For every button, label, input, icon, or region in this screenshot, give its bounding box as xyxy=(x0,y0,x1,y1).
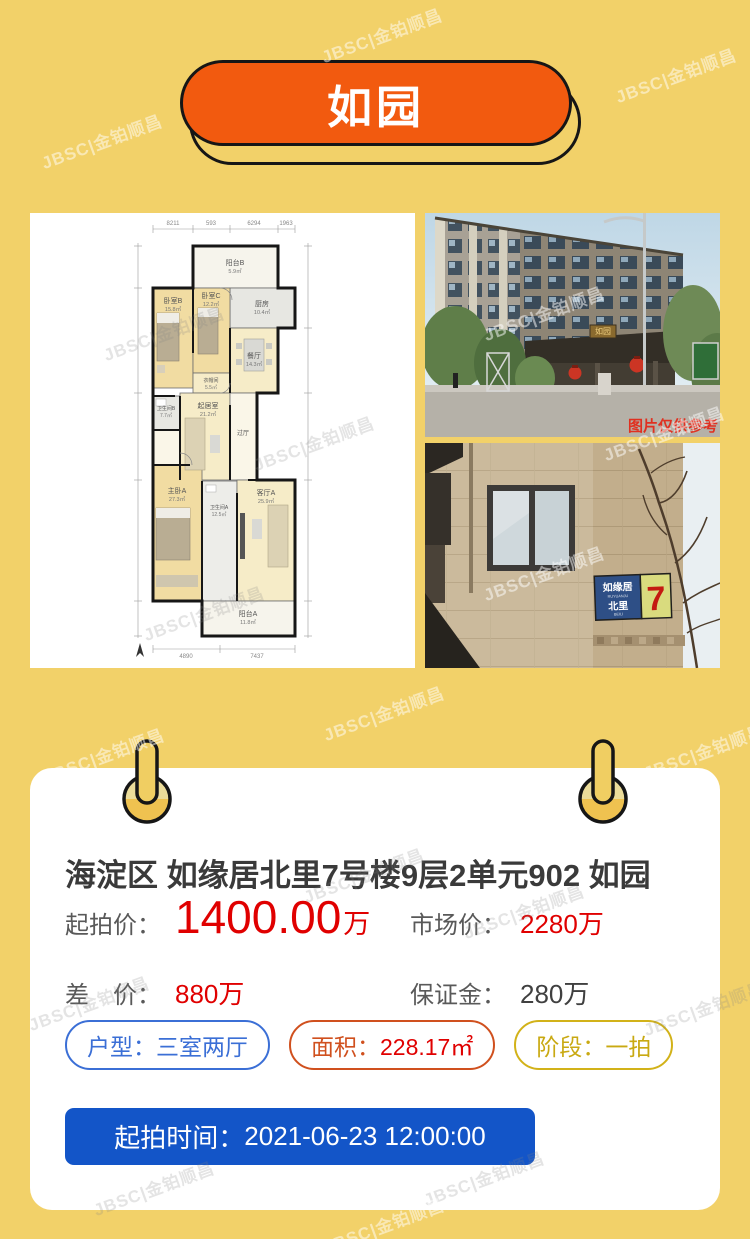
auction-time-button[interactable]: 起拍时间： 2021-06-23 12:00:00 xyxy=(65,1108,535,1165)
svg-text:7437: 7437 xyxy=(250,654,264,660)
svg-text:阳台B: 阳台B xyxy=(226,258,245,267)
svg-text:卧室C: 卧室C xyxy=(201,291,220,300)
market-price-label: 市场价： xyxy=(410,905,506,940)
svg-text:593: 593 xyxy=(206,221,217,227)
mosaic-band xyxy=(593,635,685,646)
svg-text:1963: 1963 xyxy=(279,221,293,227)
pin-icon xyxy=(121,737,173,827)
svg-text:厨房: 厨房 xyxy=(255,299,269,308)
street-number-photo: 如缘居 RUYUANJU 北里 BEILI 7 xyxy=(425,443,720,668)
svg-text:起居室: 起居室 xyxy=(198,401,219,410)
street-number-sign: 如缘居 RUYUANJU 北里 BEILI 7 xyxy=(594,574,671,621)
sign-stand xyxy=(598,373,611,395)
starting-price: 起拍价： 1400.00 万 xyxy=(65,894,410,941)
sign-number: 7 xyxy=(646,580,666,619)
svg-text:4890: 4890 xyxy=(179,654,193,660)
street-lamp-pole xyxy=(643,213,646,398)
area-tag-label: 面积： xyxy=(311,1028,380,1062)
area-tag-value: 228.17㎡ xyxy=(380,1028,473,1062)
svg-text:餐厅: 餐厅 xyxy=(247,351,261,360)
svg-text:7.7㎡: 7.7㎡ xyxy=(160,412,172,419)
sign-line1-pinyin: RUYUANJU xyxy=(608,594,629,599)
floorplan-drawing: 8211 593 6294 1963 4890 7437 xyxy=(30,213,415,668)
svg-text:5.9㎡: 5.9㎡ xyxy=(228,267,242,275)
photo-disclaimer: 图片仅供参考 xyxy=(628,417,718,435)
stage-tag: 阶段： 一拍 xyxy=(514,1020,673,1070)
svg-text:12.2㎡: 12.2㎡ xyxy=(203,300,220,308)
stage-tag-value: 一拍 xyxy=(605,1028,651,1062)
sky-strip xyxy=(683,443,720,668)
svg-text:6294: 6294 xyxy=(247,221,261,227)
svg-text:衣帽间: 衣帽间 xyxy=(203,377,218,384)
building-photo: 如园 图片仅供参考 xyxy=(425,213,720,437)
svg-text:10.4㎡: 10.4㎡ xyxy=(254,308,271,316)
watermark: JBSC|金铂顺昌 xyxy=(320,679,448,746)
starting-price-label: 起拍价： xyxy=(65,905,161,940)
layout-tag-label: 户型： xyxy=(87,1028,156,1062)
room-balcony-b xyxy=(193,246,278,288)
price-difference: 差 价： 880万 xyxy=(65,974,410,1011)
plaque-text: 如园 xyxy=(595,326,611,336)
watermark: JBSC|金铂顺昌 xyxy=(318,1,446,68)
notice-board xyxy=(693,343,718,379)
deposit-value: 280万 xyxy=(520,974,589,1011)
price-difference-label: 差 价： xyxy=(65,975,161,1010)
svg-text:主卧A: 主卧A xyxy=(168,486,187,495)
market-price: 市场价： 2280万 xyxy=(410,904,604,941)
deposit-label: 保证金： xyxy=(410,975,506,1010)
starting-price-value: 1400.00 xyxy=(175,894,341,940)
svg-text:14.3㎡: 14.3㎡ xyxy=(246,360,263,368)
sign-line2-pinyin: BEILI xyxy=(614,612,623,616)
pedestrian xyxy=(453,373,458,388)
svg-text:5.5㎡: 5.5㎡ xyxy=(205,384,217,391)
room-kitchen xyxy=(230,288,295,328)
svg-text:卫生间A: 卫生间A xyxy=(210,504,229,511)
price-difference-value: 880万 xyxy=(175,974,244,1011)
layout-tag: 户型： 三室两厅 xyxy=(65,1020,270,1070)
community-name-pill: 如园 xyxy=(180,60,580,164)
listing-title: 海淀区 如缘居北里7号楼9层2单元902 如园 xyxy=(65,850,651,895)
auction-time-label: 起拍时间： xyxy=(114,1118,244,1155)
price-row-2: 差 价： 880万 保证金： 280万 xyxy=(65,974,695,1011)
svg-text:27.3㎡: 27.3㎡ xyxy=(169,495,186,503)
watermark: JBSC|金铂顺昌 xyxy=(612,41,740,108)
svg-text:21.2㎡: 21.2㎡ xyxy=(200,410,217,418)
svg-text:过厅: 过厅 xyxy=(237,429,249,437)
community-name: 如园 xyxy=(327,71,425,136)
svg-text:15.8㎡: 15.8㎡ xyxy=(165,305,182,313)
wall-column xyxy=(593,443,685,668)
deposit: 保证金： 280万 xyxy=(410,974,589,1011)
window xyxy=(487,485,575,571)
layout-tag-value: 三室两厅 xyxy=(156,1028,248,1062)
drain-pipe xyxy=(469,443,473,593)
floorplan-image: 8211 593 6294 1963 4890 7437 xyxy=(30,213,415,668)
svg-text:阳台A: 阳台A xyxy=(239,609,258,618)
starting-price-unit: 万 xyxy=(343,902,370,941)
pill-face: 如园 xyxy=(180,60,572,146)
facade-illustration: 如缘居 RUYUANJU 北里 BEILI 7 xyxy=(425,443,720,668)
market-price-value: 2280万 xyxy=(520,904,604,941)
area-tag: 面积： 228.17㎡ xyxy=(289,1020,495,1070)
auction-time-value: 2021-06-23 12:00:00 xyxy=(244,1121,485,1152)
pin-icon xyxy=(577,737,629,827)
listing-card: 海淀区 如缘居北里7号楼9层2单元902 如园 起拍价： 1400.00 万 市… xyxy=(30,768,720,1210)
svg-text:11.8㎡: 11.8㎡ xyxy=(240,618,256,626)
room-bath-a xyxy=(202,481,237,601)
svg-text:客厅A: 客厅A xyxy=(257,488,276,497)
svg-text:卧室B: 卧室B xyxy=(164,296,183,305)
svg-text:8211: 8211 xyxy=(167,221,181,227)
room-balcony-a xyxy=(202,601,295,636)
svg-text:12.5㎡: 12.5㎡ xyxy=(212,511,227,518)
watermark: JBSC|金铂顺昌 xyxy=(38,107,166,174)
tag-row: 户型： 三室两厅 面积： 228.17㎡ 阶段： 一拍 xyxy=(65,1020,673,1070)
room-corridor xyxy=(153,430,180,465)
stage-tag-label: 阶段： xyxy=(536,1028,605,1062)
building-illustration: 如园 图片仅供参考 xyxy=(425,213,720,437)
price-row-1: 起拍价： 1400.00 万 市场价： 2280万 xyxy=(65,894,695,941)
svg-text:卫生间B: 卫生间B xyxy=(157,405,176,412)
svg-text:25.9㎡: 25.9㎡ xyxy=(258,497,275,505)
auction-poster-page: 如园 8211 593 6294 xyxy=(0,0,750,1239)
sign-line2: 北里 xyxy=(608,599,628,613)
sign-line1: 如缘居 xyxy=(602,580,632,594)
